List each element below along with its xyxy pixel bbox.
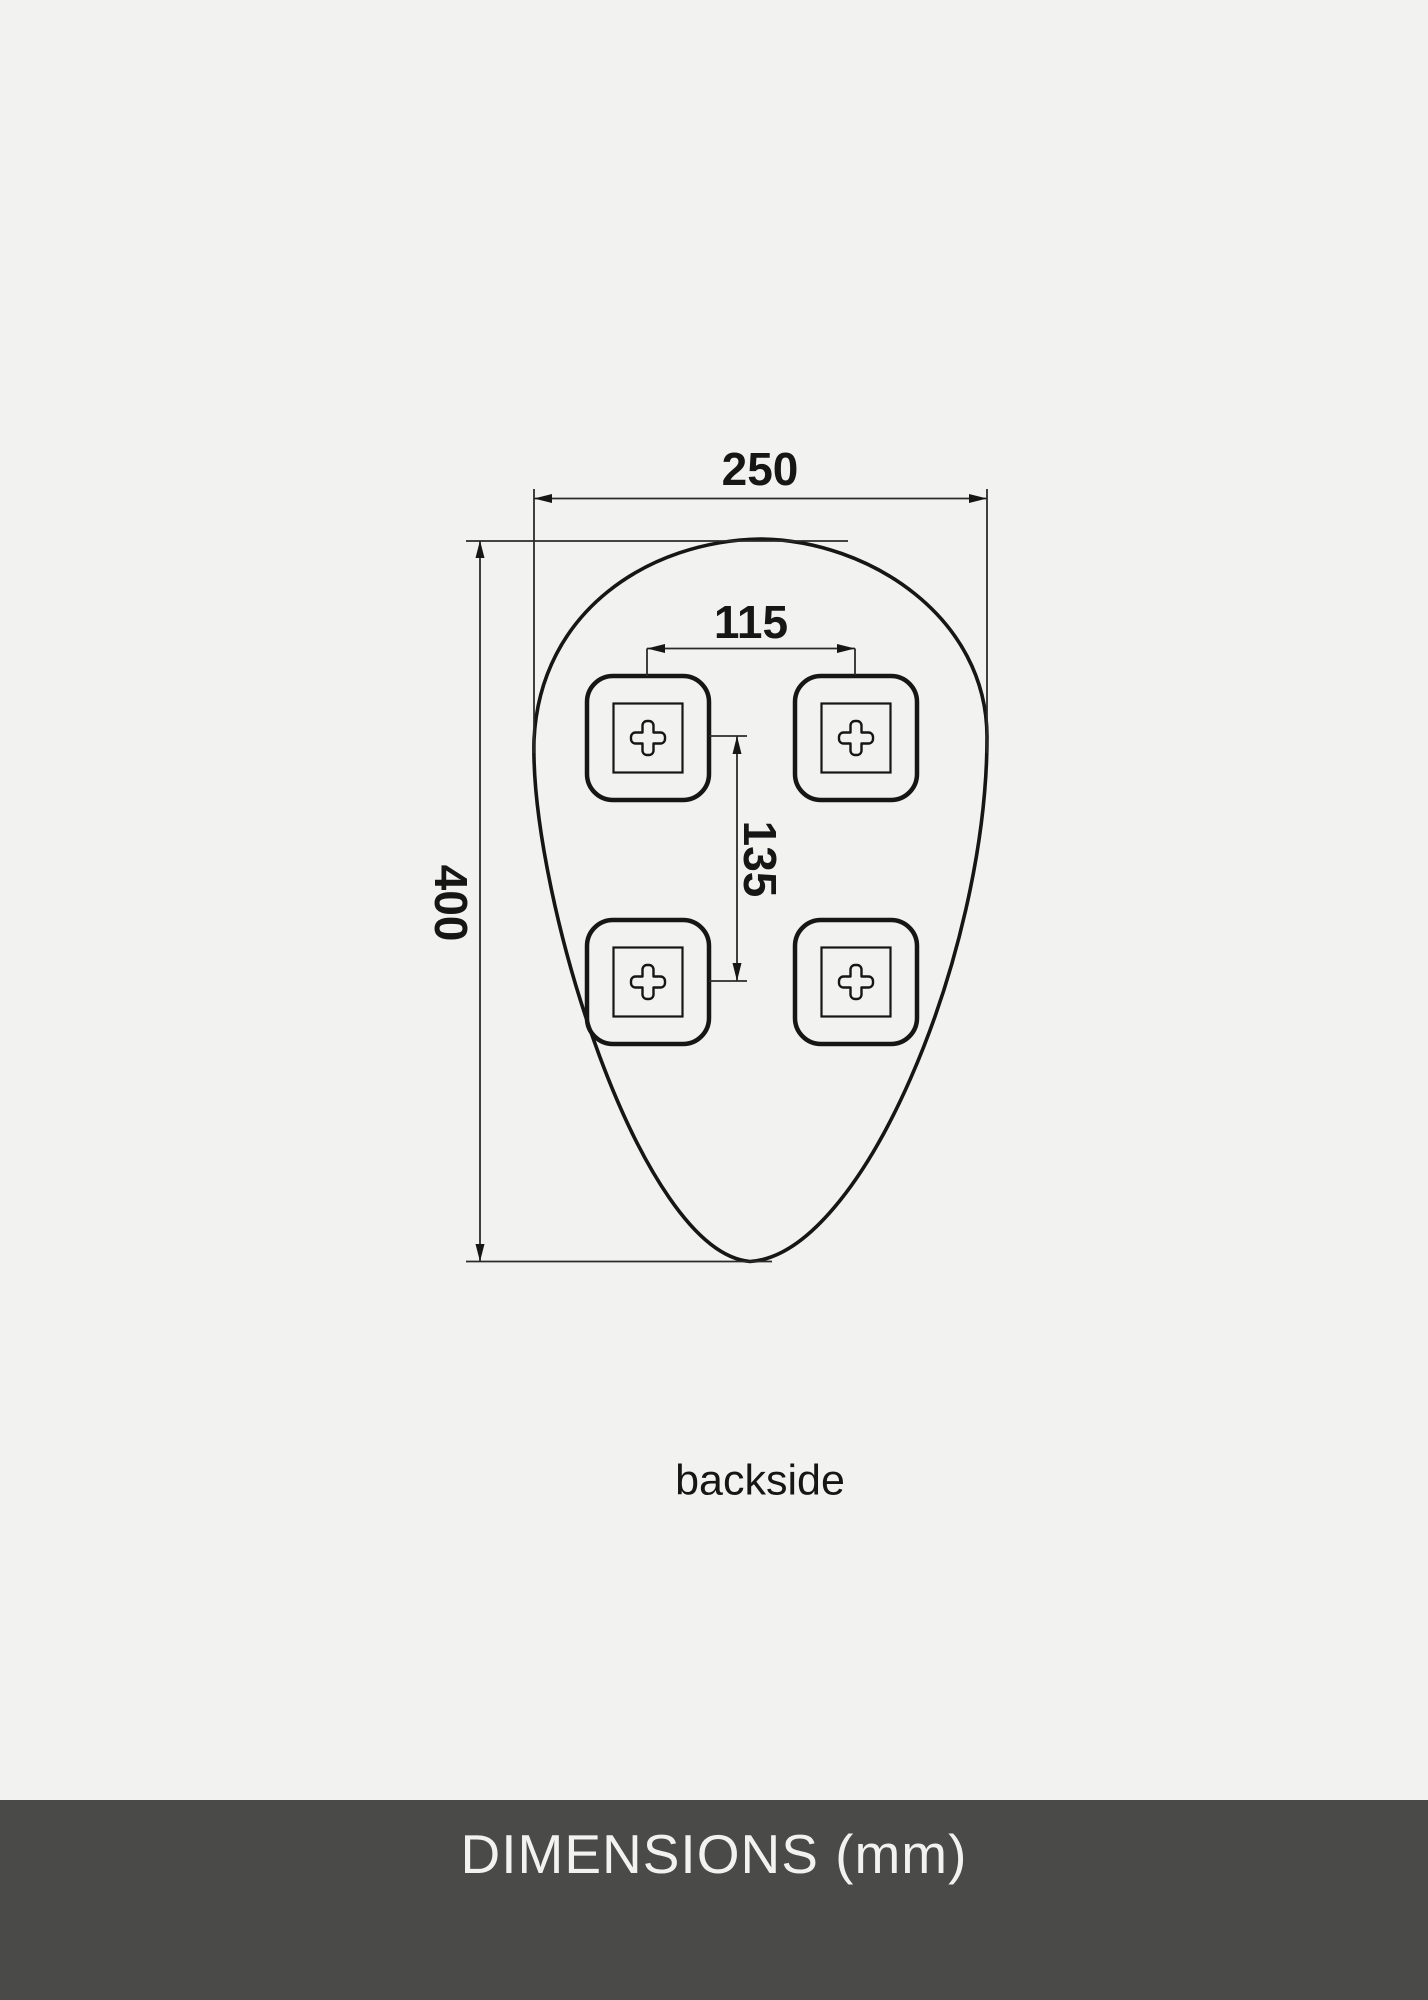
height-dimension-label: 400 (428, 865, 474, 942)
mounting-bracket-top-right (795, 676, 917, 800)
bracket-horizontal-spacing-label: 115 (714, 599, 788, 645)
drawing-canvas (0, 0, 1428, 2000)
technical-drawing: 250 400 115 135 backside (0, 0, 1428, 2000)
arrow-down-icon (476, 1244, 485, 1262)
width-dimension-label: 250 (722, 446, 799, 492)
arrow-up-icon (733, 736, 742, 754)
footer-title: DIMENSIONS (mm) (461, 1827, 968, 1882)
arrow-up-icon (476, 541, 485, 559)
arrow-down-icon (733, 963, 742, 981)
footer-bar: DIMENSIONS (mm) (0, 1800, 1428, 2000)
mounting-bracket-top-left (587, 676, 709, 800)
dimension-bracket-horizontal (647, 649, 855, 677)
arrow-left-icon (534, 494, 552, 503)
page: 250 400 115 135 backside DIMENSIONS (mm) (0, 0, 1428, 2000)
backside-caption: backside (675, 1460, 845, 1503)
mounting-bracket-bottom-right (795, 920, 917, 1044)
arrow-left-icon (647, 644, 665, 653)
mounting-bracket-bottom-left (587, 920, 709, 1044)
arrow-right-icon (969, 494, 987, 503)
bracket-vertical-spacing-label: 135 (737, 821, 783, 898)
arrow-right-icon (837, 644, 855, 653)
